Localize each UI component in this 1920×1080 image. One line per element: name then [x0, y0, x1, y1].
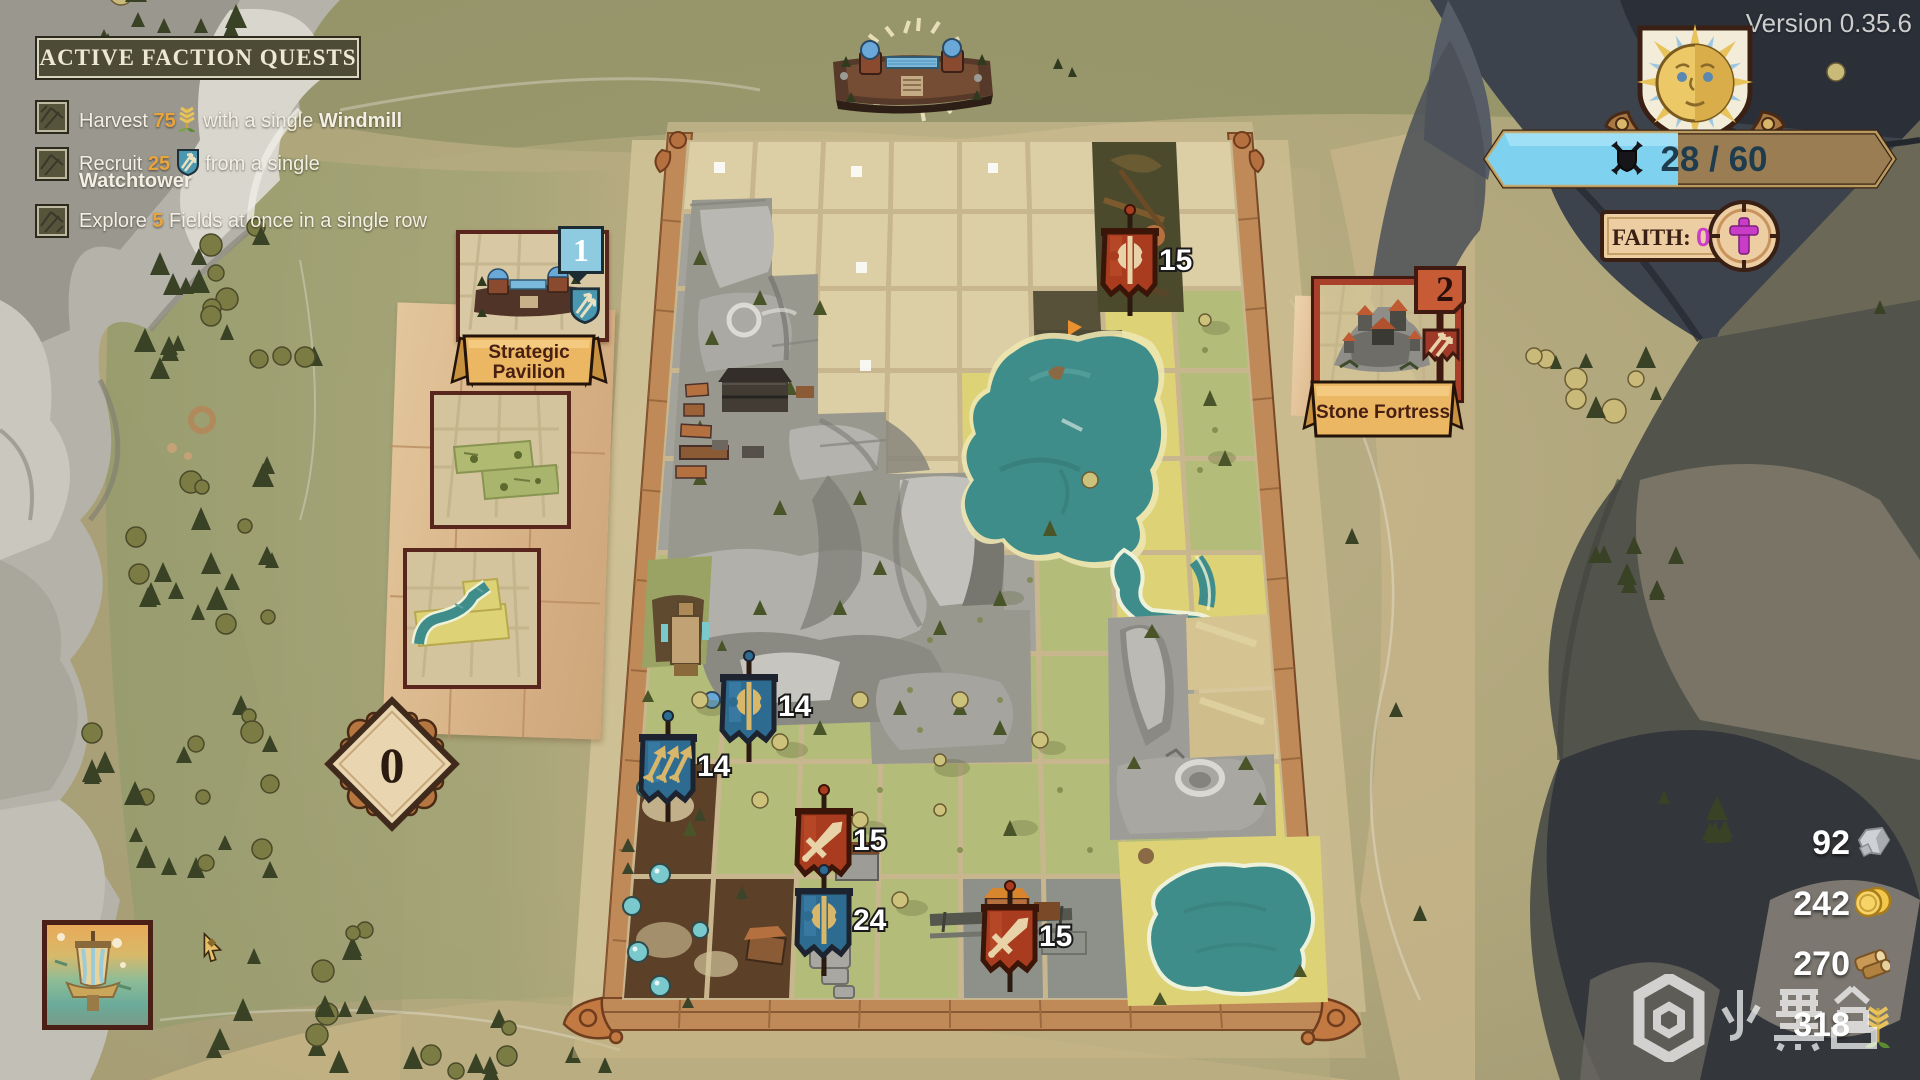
svg-text:15: 15 [1159, 244, 1192, 277]
svg-text:15: 15 [853, 824, 886, 857]
svg-text:14: 14 [778, 690, 812, 723]
svg-text:15: 15 [1039, 920, 1072, 953]
svg-text:Pavilion: Pavilion [493, 362, 566, 383]
svg-text:28 / 60: 28 / 60 [1660, 140, 1767, 179]
svg-text:FAITH:: FAITH: [1612, 225, 1691, 250]
svg-text:Stone Fortress: Stone Fortress [1316, 402, 1450, 423]
svg-text:0: 0 [1696, 222, 1710, 252]
svg-text:14: 14 [697, 750, 731, 783]
svg-text:24: 24 [853, 904, 887, 937]
svg-text:Strategic: Strategic [488, 342, 570, 363]
svg-text:0: 0 [380, 737, 405, 793]
svg-text:2: 2 [1436, 269, 1454, 309]
